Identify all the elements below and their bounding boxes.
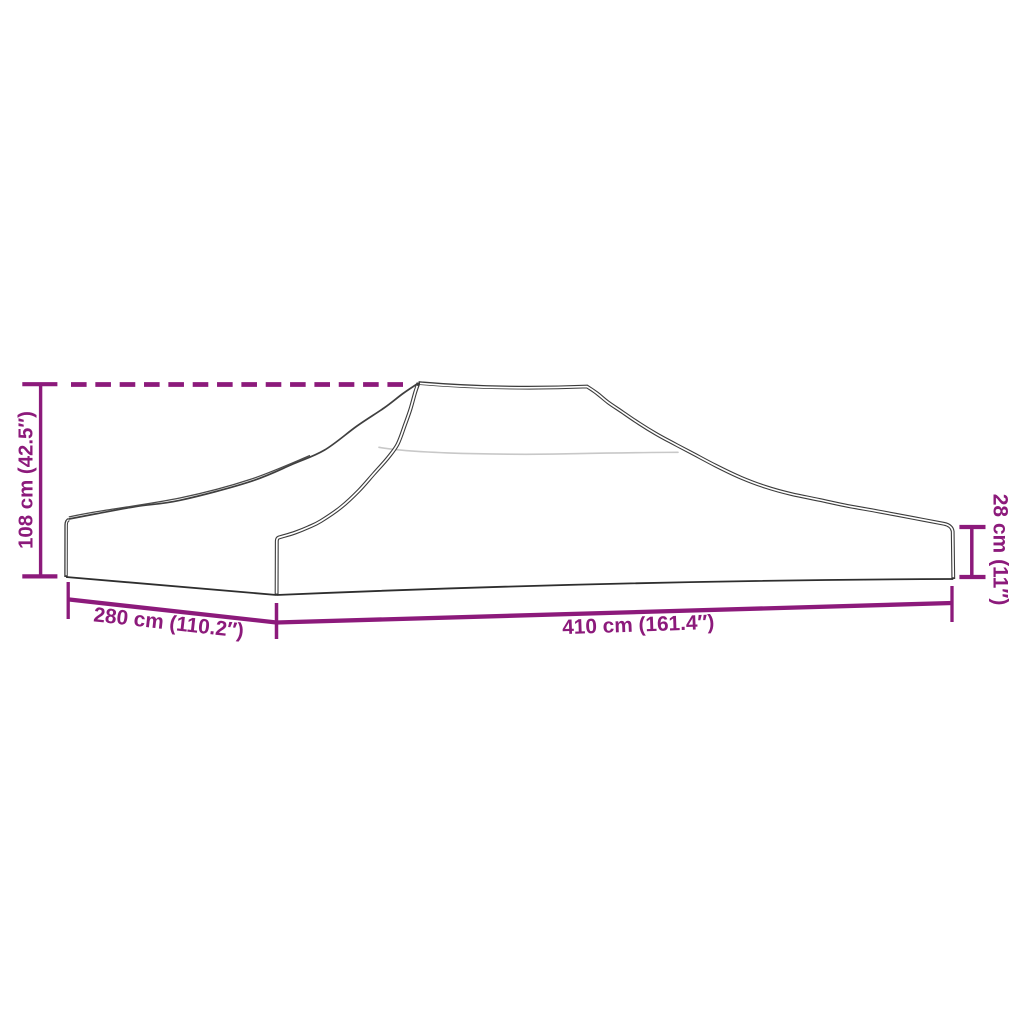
- svg-text:28 cm (11″): 28 cm (11″): [989, 494, 1012, 606]
- svg-text:108 cm (42.5″): 108 cm (42.5″): [15, 411, 37, 549]
